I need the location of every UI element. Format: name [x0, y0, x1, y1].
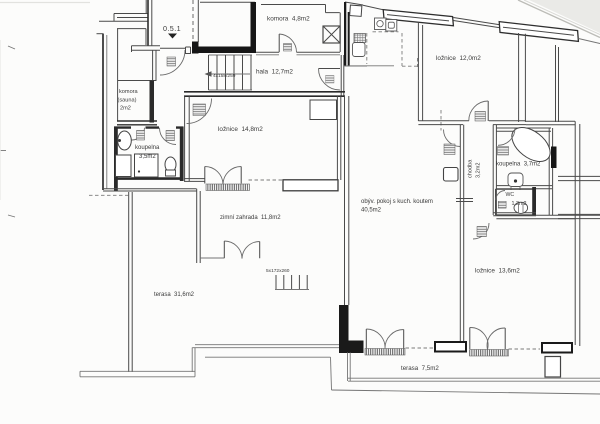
svg-text:ložnice 14,8m2: ložnice 14,8m2: [218, 126, 263, 133]
svg-text:2m2: 2m2: [120, 106, 131, 112]
svg-text:40,5m2: 40,5m2: [361, 208, 382, 214]
svg-text:koupelna 3,7m2: koupelna 3,7m2: [496, 161, 541, 167]
svg-text:3,2m2: 3,2m2: [476, 162, 482, 178]
svg-text:chodba: chodba: [468, 159, 474, 178]
svg-text:WC: WC: [506, 192, 515, 198]
svg-text:ložnice 13,6m2: ložnice 13,6m2: [475, 268, 520, 275]
svg-text:1,2m2: 1,2m2: [512, 201, 527, 207]
svg-text:terasa 7,5m2: terasa 7,5m2: [401, 365, 439, 372]
svg-text:terasa 31,6m2: terasa 31,6m2: [154, 292, 195, 298]
svg-text:komora: komora: [119, 89, 139, 95]
svg-text:5x172x260: 5x172x260: [266, 268, 290, 274]
svg-text:koupelna: koupelna: [135, 145, 160, 151]
svg-text:hala 12,7m2: hala 12,7m2: [256, 69, 293, 76]
svg-text:komora 4,8m2: komora 4,8m2: [267, 16, 310, 23]
svg-text:0.5.1: 0.5.1: [163, 24, 181, 33]
svg-text:4x158/259: 4x158/259: [213, 73, 236, 79]
svg-text:ložnice 12,0m2: ložnice 12,0m2: [436, 55, 481, 62]
svg-text:3,5m2: 3,5m2: [139, 154, 156, 160]
svg-text:zimní zahrada 11,8m2: zimní zahrada 11,8m2: [220, 215, 281, 221]
svg-text:(sauna): (sauna): [118, 98, 137, 104]
svg-text:obýv. pokoj s kuch. koutem: obýv. pokoj s kuch. koutem: [361, 199, 433, 205]
